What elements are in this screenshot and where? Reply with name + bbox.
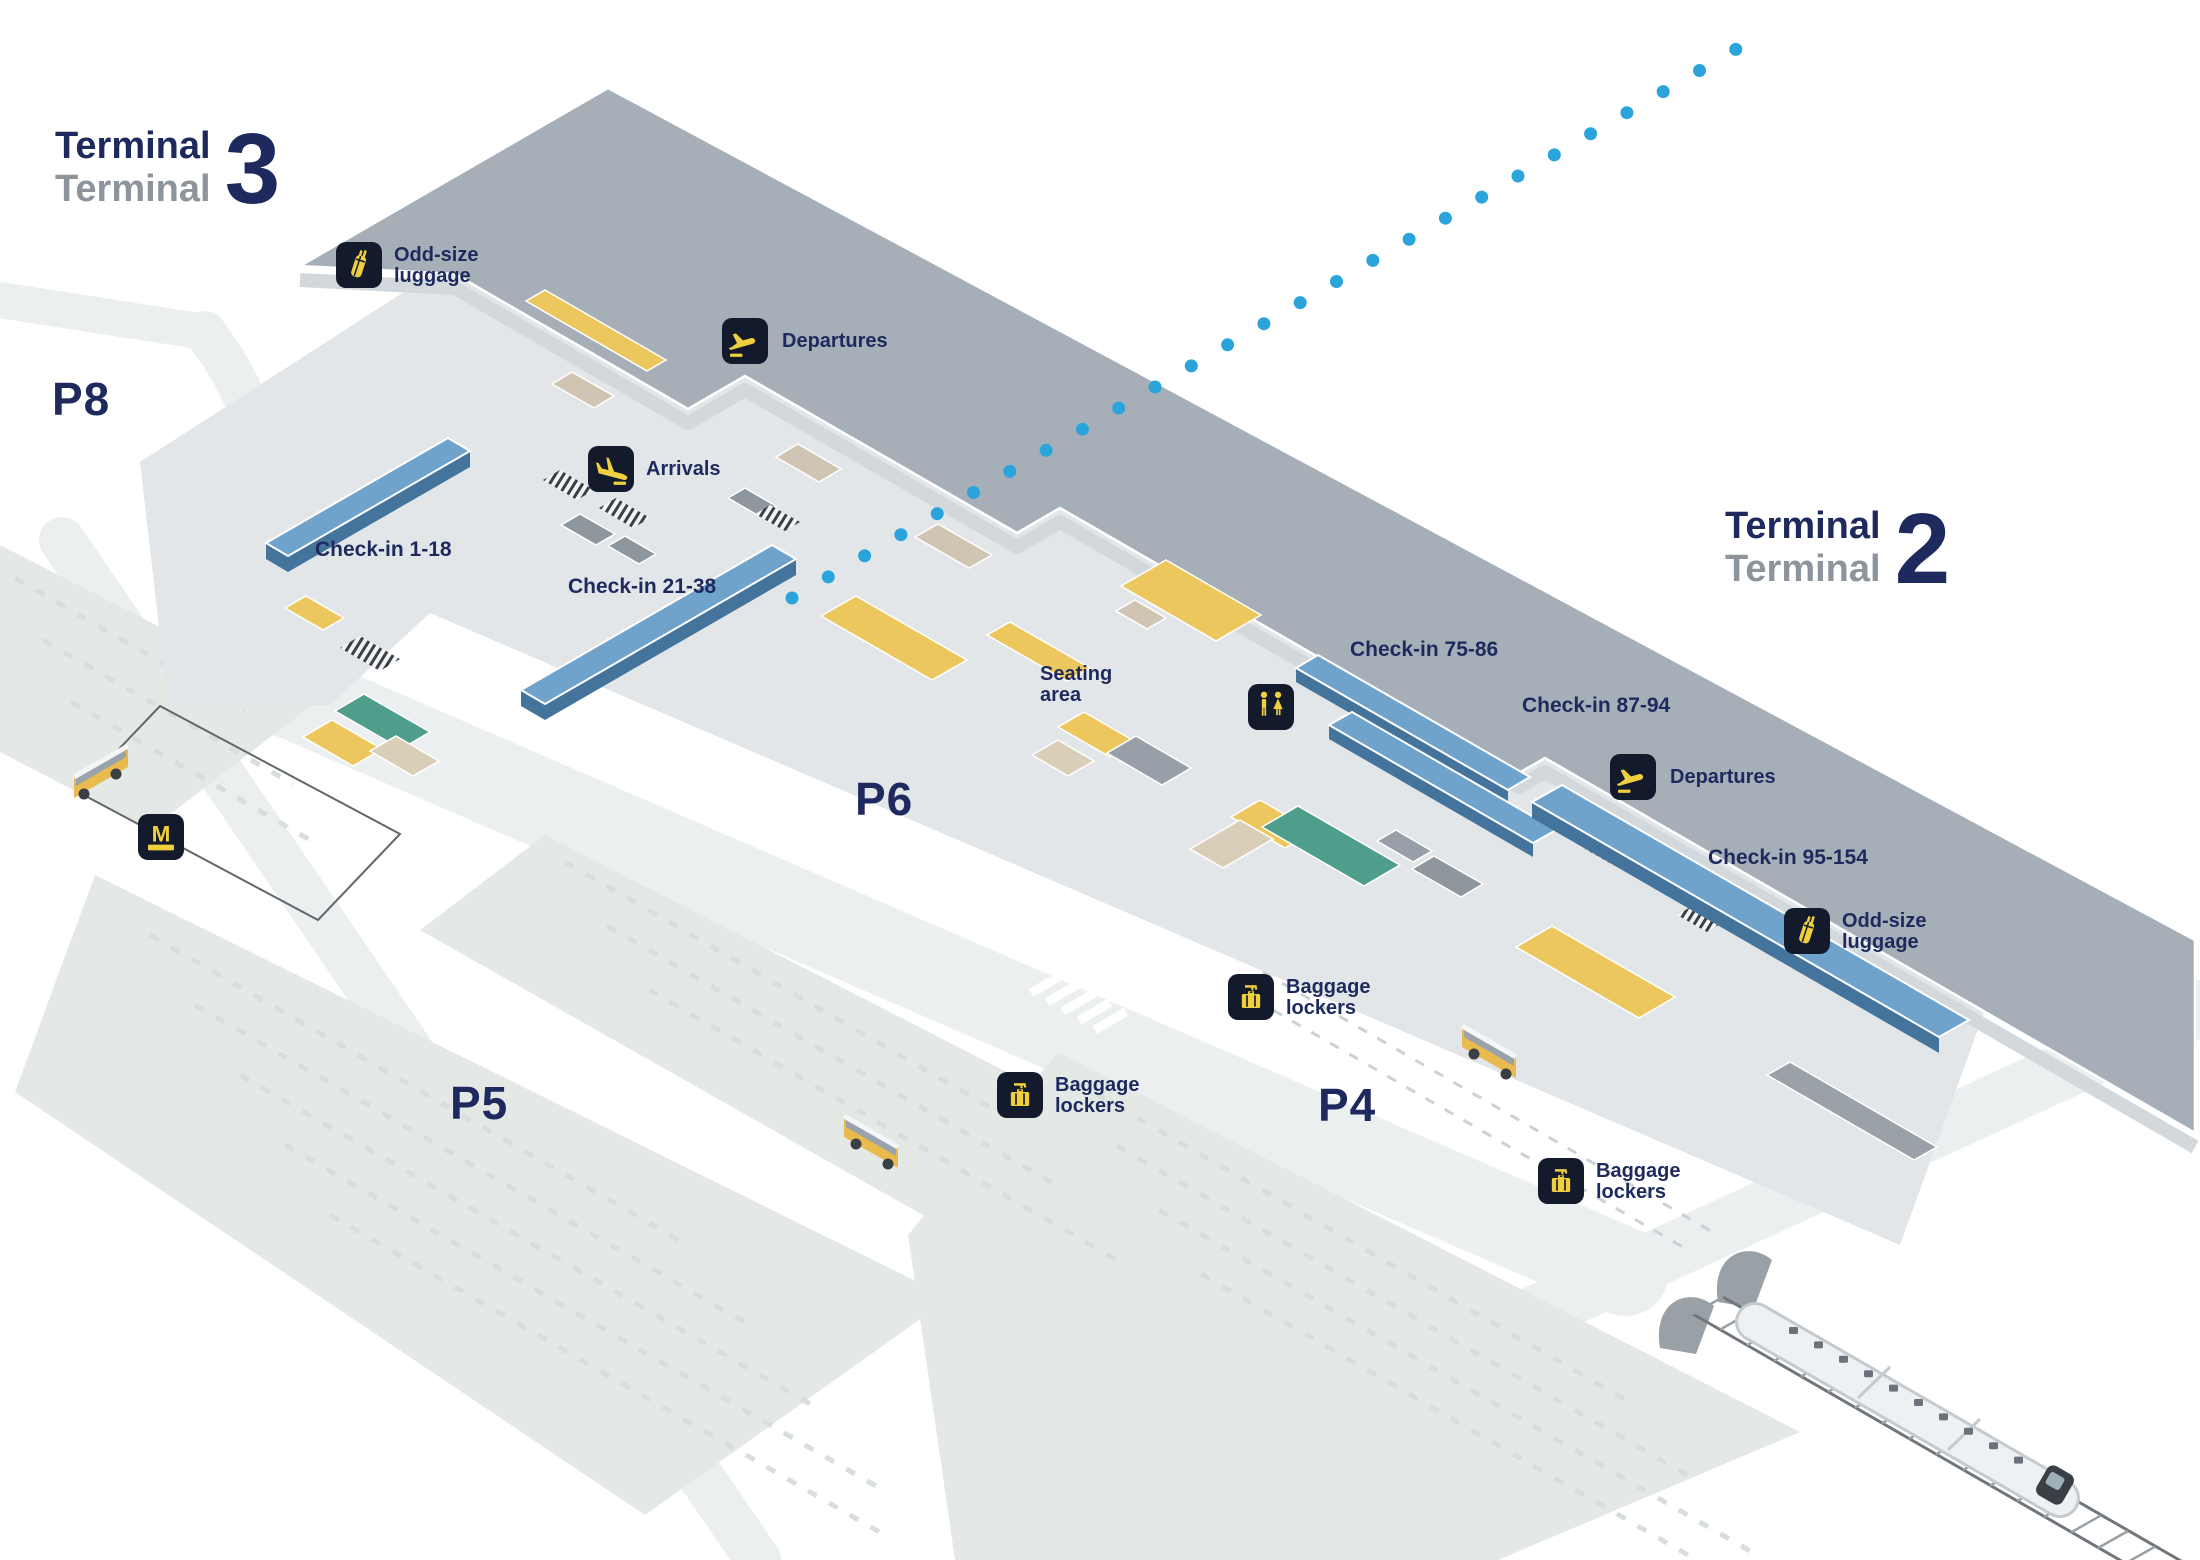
train	[1755, 1322, 2076, 1507]
terminal-3-label: Terminal Terminal 3	[55, 125, 280, 215]
terminal-2-number: 2	[1895, 503, 1951, 595]
baggage-lockers-label: Baggage lockers	[1055, 1075, 1139, 1117]
checkin-75-86-label: Check-in 75-86	[1350, 638, 1498, 662]
baggage-lockers-icon	[1228, 974, 1274, 1020]
arrivals-icon	[588, 446, 634, 492]
baggage-lockers-label: Baggage lockers	[1286, 977, 1370, 1019]
baggage-lockers-icon	[997, 1072, 1043, 1118]
baggage-lockers-label: Baggage lockers	[1596, 1161, 1680, 1203]
baggage-lockers-icon	[1538, 1158, 1584, 1204]
departures-icon	[1610, 754, 1656, 800]
seating-area-label: Seating area	[1040, 664, 1112, 706]
departures-icon	[722, 318, 768, 364]
parking-p6-label: P6	[855, 772, 913, 826]
checkin-21-38-label: Check-in 21-38	[568, 575, 716, 599]
checkin-1-18-label: Check-in 1-18	[315, 538, 452, 562]
upper-left-road	[0, 300, 205, 332]
parking-p8-label: P8	[52, 372, 110, 426]
map-canvas: M	[0, 0, 2200, 1560]
parking-p5-label: P5	[450, 1076, 508, 1130]
odd-size-luggage-icon	[336, 242, 382, 288]
checkin-95-154-label: Check-in 95-154	[1708, 846, 1868, 870]
parking-p4-label: P4	[1318, 1078, 1376, 1132]
odd-size-luggage-icon	[1784, 908, 1830, 954]
terminal-3-name: Terminal	[55, 125, 211, 168]
toilets-icon	[1248, 684, 1294, 730]
airport-terminal-map: M Terminal Terminal 3 Terminal Terminal …	[0, 0, 2200, 1560]
terminal-2-label: Terminal Terminal 2	[1725, 505, 1950, 595]
terminal-2-name-alt: Terminal	[1725, 548, 1881, 591]
odd-size-luggage-label: Odd-size luggage	[394, 245, 478, 287]
departures-label: Departures	[782, 331, 888, 352]
odd-size-luggage-label: Odd-size luggage	[1842, 911, 1926, 953]
terminal-3-number: 3	[225, 123, 281, 215]
departures-label: Departures	[1670, 767, 1776, 788]
terminal-2-name: Terminal	[1725, 505, 1881, 548]
checkin-87-94-label: Check-in 87-94	[1522, 694, 1670, 718]
arrivals-label: Arrivals	[646, 459, 721, 480]
terminal-3-name-alt: Terminal	[55, 168, 211, 211]
metro-icon	[138, 814, 184, 860]
